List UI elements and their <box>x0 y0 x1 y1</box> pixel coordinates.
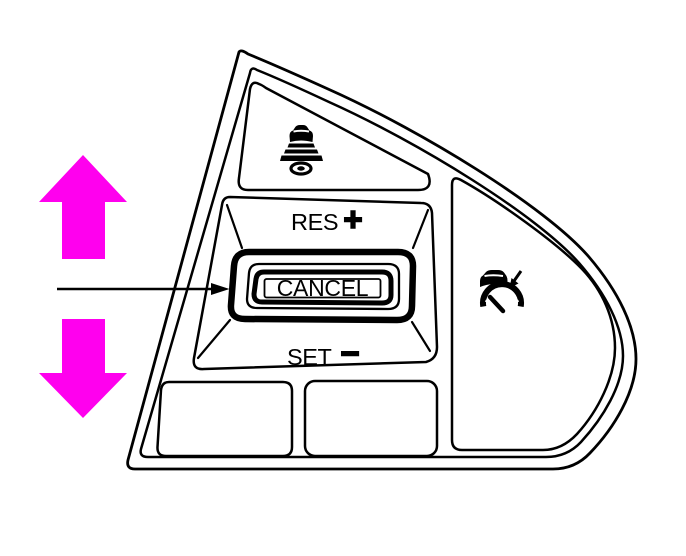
cancel-button: CANCEL <box>231 252 413 320</box>
diagram-canvas: RES + CANCEL SET − <box>0 0 686 556</box>
blank-button-right <box>305 381 437 456</box>
set-label: SET <box>287 344 332 370</box>
down-arrow <box>39 319 127 418</box>
minus-symbol: − <box>340 335 359 372</box>
steering-wheel-controls-diagram: RES + CANCEL SET − <box>0 0 686 556</box>
cancel-label: CANCEL <box>277 275 369 301</box>
up-arrow <box>39 155 127 259</box>
plus-symbol: + <box>343 201 362 238</box>
res-label: RES <box>291 209 338 235</box>
blank-button-left <box>157 382 292 456</box>
cruise-rocker: RES + CANCEL SET − <box>194 197 437 372</box>
